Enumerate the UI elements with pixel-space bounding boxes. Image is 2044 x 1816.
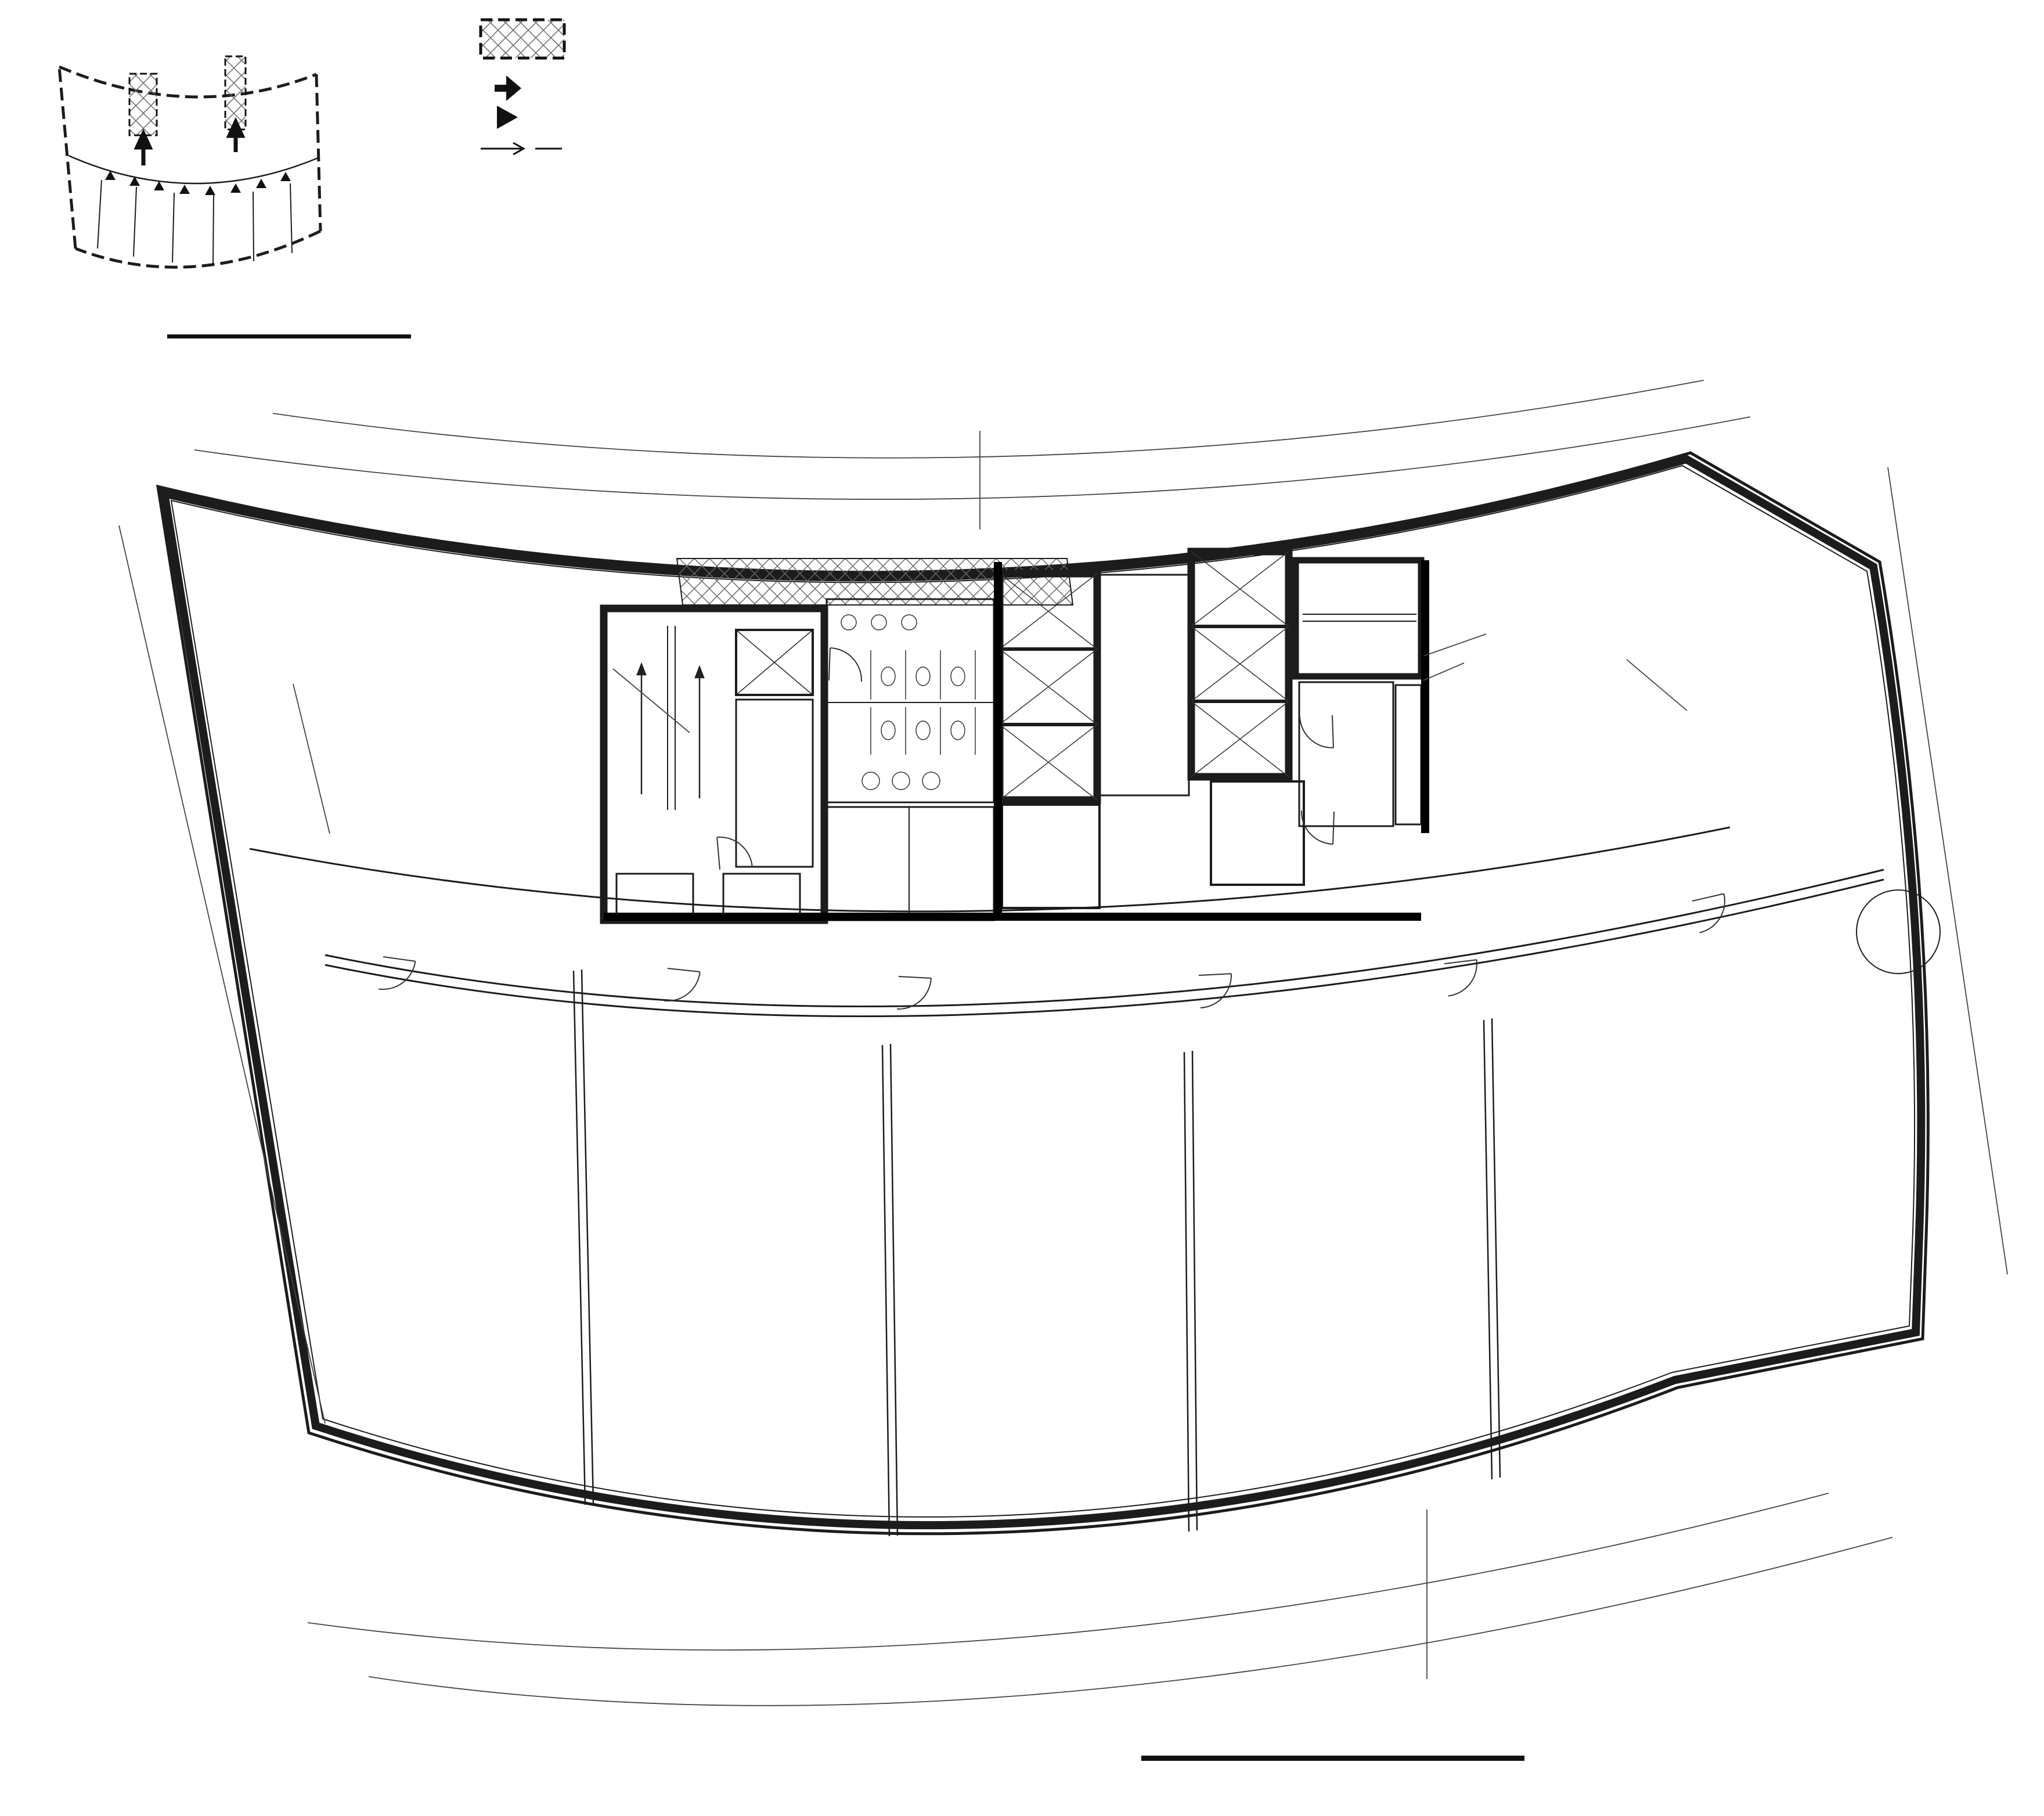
front-room-left (736, 700, 813, 867)
ws-room (1002, 805, 1099, 908)
elevator-bank-b-crosses (1191, 552, 1289, 777)
key-plan-stair-hatch-left (129, 74, 157, 135)
doors (378, 648, 1731, 1011)
core (604, 552, 1429, 921)
electrical-rooms (827, 807, 994, 920)
key-plan (59, 56, 320, 267)
building-outline (158, 453, 1940, 1534)
machine-shaft (1099, 575, 1189, 795)
floor-plan-canvas (0, 0, 2044, 1816)
evacuation-corridor-hatch (677, 559, 1073, 605)
office-dividers (574, 970, 1500, 1536)
legend-stair-hatch-swatch (481, 20, 564, 58)
sheet-title-underline (1141, 1756, 1524, 1761)
leader-lines (613, 634, 1687, 733)
core-right-wall (1421, 560, 1429, 833)
route-arrow-icon (481, 143, 562, 154)
stair-2-arrows (637, 664, 704, 798)
safety-exit-arrow-icon (495, 75, 521, 101)
room-exit-arrow-icon (497, 106, 518, 129)
core-mid-wall (994, 562, 1002, 921)
elevator-bank-a-crosses (1000, 574, 1097, 800)
stair-1-block (1296, 560, 1421, 676)
front-room-right (1299, 682, 1393, 826)
legend (481, 20, 564, 154)
se-room (1211, 781, 1304, 885)
sp-shaft-2 (723, 874, 800, 918)
key-plan-room-dividers (98, 180, 292, 265)
corridor-walls (250, 827, 1884, 1017)
drawing-sheet: { "drawing": { "key_plan_title": "本层消防疏散… (0, 0, 2044, 1816)
key-plan-title-underline (167, 334, 411, 338)
core-bottom-wall (604, 913, 1421, 921)
sp-shaft-1 (617, 874, 693, 918)
sp-shaft-3 (1396, 685, 1421, 824)
